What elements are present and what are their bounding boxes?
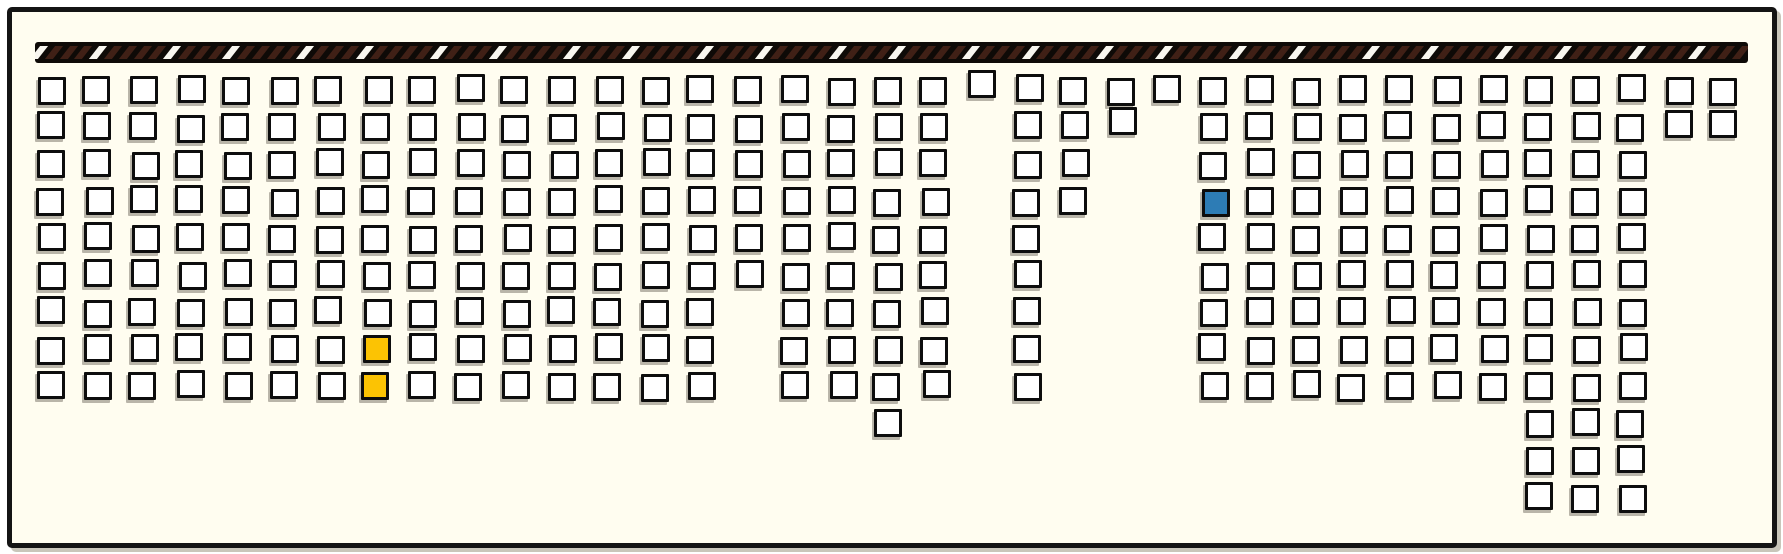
grid-cell-r1c25[interactable] xyxy=(1153,75,1181,103)
grid-cell-r9c20[interactable] xyxy=(923,370,951,398)
grid-cell-r8c31[interactable] xyxy=(1430,334,1458,362)
grid-cell-r2c34[interactable] xyxy=(1573,112,1601,140)
grid-cell-r9c4[interactable] xyxy=(177,370,205,398)
grid-cell-r5c22[interactable] xyxy=(1012,225,1040,253)
grid-cell-r3c19[interactable] xyxy=(875,148,903,176)
grid-cell-r9c14[interactable] xyxy=(641,374,669,402)
grid-cell-r2c1[interactable] xyxy=(37,111,65,139)
grid-cell-r4c12[interactable] xyxy=(548,188,576,216)
grid-cell-r4c18[interactable] xyxy=(828,186,856,214)
grid-cell-r2c26[interactable] xyxy=(1200,113,1228,141)
grid-cell-r6c20[interactable] xyxy=(919,261,947,289)
grid-cell-r4c5[interactable] xyxy=(222,186,250,214)
selected-cell-yellow-1[interactable] xyxy=(363,335,391,363)
grid-cell-r3c5[interactable] xyxy=(224,152,252,180)
grid-cell-r1c4[interactable] xyxy=(178,75,206,103)
grid-cell-r1c7[interactable] xyxy=(314,76,342,104)
grid-cell-r4c10[interactable] xyxy=(455,187,483,215)
grid-cell-r6c5[interactable] xyxy=(224,259,252,287)
grid-cell-r2c33[interactable] xyxy=(1524,113,1552,141)
grid-cell-r5c12[interactable] xyxy=(548,226,576,254)
hazard-stripe-brown xyxy=(1732,46,1748,59)
grid-cell-r2c23[interactable] xyxy=(1061,111,1089,139)
grid-cell-r6c10[interactable] xyxy=(457,262,485,290)
grid-cell-r6c17[interactable] xyxy=(782,263,810,291)
grid-cell-r9c15[interactable] xyxy=(688,372,716,400)
grid-cell-r5c1[interactable] xyxy=(38,223,66,251)
grid-cell-r6c12[interactable] xyxy=(548,262,576,290)
grid-cell-r1c13[interactable] xyxy=(596,76,624,104)
grid-cell-r8c20[interactable] xyxy=(920,337,948,365)
grid-cell-r7c30[interactable] xyxy=(1388,296,1416,324)
grid-cell-r6c34[interactable] xyxy=(1573,260,1601,288)
grid-cell-r4c1[interactable] xyxy=(36,188,64,216)
grid-cell-r8c19[interactable] xyxy=(875,336,903,364)
grid-cell-r1c32[interactable] xyxy=(1480,75,1508,103)
grid-cell-r8c3[interactable] xyxy=(131,334,159,362)
grid-cell-r8c18[interactable] xyxy=(828,336,856,364)
grid-cell-r9c34[interactable] xyxy=(1573,374,1601,402)
grid-cell-r8c6[interactable] xyxy=(271,335,299,363)
grid-cell-r8c29[interactable] xyxy=(1340,336,1368,364)
grid-cell-r1c23[interactable] xyxy=(1059,77,1087,105)
grid-cell-r7c26[interactable] xyxy=(1200,299,1228,327)
grid-cell-r4c15[interactable] xyxy=(688,186,716,214)
grid-cell-r1c15[interactable] xyxy=(686,75,714,103)
grid-cell-r1c36[interactable] xyxy=(1666,77,1694,105)
grid-cell-r2c2[interactable] xyxy=(83,112,111,140)
grid-cell-r9c27[interactable] xyxy=(1246,372,1274,400)
grid-cell-r9c13[interactable] xyxy=(593,373,621,401)
grid-cell-r5c29[interactable] xyxy=(1340,226,1368,254)
grid-cell-r3c34[interactable] xyxy=(1572,150,1600,178)
grid-cell-r4c28[interactable] xyxy=(1293,187,1321,215)
grid-cell-r6c26[interactable] xyxy=(1201,263,1229,291)
grid-cell-r2c3[interactable] xyxy=(129,112,157,140)
grid-cell-r2c7[interactable] xyxy=(318,113,346,141)
grid-cell-r2c19[interactable] xyxy=(875,113,903,141)
grid-cell-r5c9[interactable] xyxy=(409,226,437,254)
grid-cell-r7c17[interactable] xyxy=(782,299,810,327)
grid-cell-r4c2[interactable] xyxy=(86,187,114,215)
grid-cell-r9c6[interactable] xyxy=(270,371,298,399)
grid-cell-r2c29[interactable] xyxy=(1339,114,1367,142)
grid-cell-r5c8[interactable] xyxy=(361,225,389,253)
grid-cell-r6c9[interactable] xyxy=(408,261,436,289)
grid-cell-r8c27[interactable] xyxy=(1247,337,1275,365)
grid-cell-r4c34[interactable] xyxy=(1571,188,1599,216)
grid-cell-r7c8[interactable] xyxy=(364,299,392,327)
grid-cell-r6c22[interactable] xyxy=(1014,260,1042,288)
selected-cell-blue[interactable] xyxy=(1202,189,1230,217)
grid-cell-r5c26[interactable] xyxy=(1198,223,1226,251)
grid-cell-r9c29[interactable] xyxy=(1337,374,1365,402)
grid-cell-r3c11[interactable] xyxy=(503,151,531,179)
grid-cell-r5c30[interactable] xyxy=(1384,225,1412,253)
grid-cell-r5c27[interactable] xyxy=(1247,223,1275,251)
grid-cell-r1c28[interactable] xyxy=(1293,78,1321,106)
grid-cell-r8c34[interactable] xyxy=(1573,336,1601,364)
grid-cell-r2c15[interactable] xyxy=(687,114,715,142)
grid-cell-r2c14[interactable] xyxy=(644,114,672,142)
grid-cell-r1c34[interactable] xyxy=(1572,76,1600,104)
grid-cell-r8c2[interactable] xyxy=(84,334,112,362)
grid-cell-r9c3[interactable] xyxy=(128,372,156,400)
grid-cell-r5c2[interactable] xyxy=(84,222,112,250)
grid-cell-r6c29[interactable] xyxy=(1338,260,1366,288)
grid-cell-r4c11[interactable] xyxy=(503,188,531,216)
grid-cell-r6c11[interactable] xyxy=(502,262,530,290)
grid-cell-r8c22[interactable] xyxy=(1013,335,1041,363)
grid-cell-r6c3[interactable] xyxy=(131,259,159,287)
grid-cell-r9c11[interactable] xyxy=(502,371,530,399)
grid-cell-r2c36[interactable] xyxy=(1665,110,1693,138)
grid-cell-r8c9[interactable] xyxy=(409,333,437,361)
grid-cell-r8c14[interactable] xyxy=(642,334,670,362)
grid-cell-r2c22[interactable] xyxy=(1014,111,1042,139)
grid-cell-r1c9[interactable] xyxy=(408,76,436,104)
grid-cell-r2c30[interactable] xyxy=(1384,111,1412,139)
grid-cell-r7c15[interactable] xyxy=(686,298,714,326)
grid-cell-r4c16[interactable] xyxy=(734,186,762,214)
grid-cell-r7c28[interactable] xyxy=(1292,297,1320,325)
grid-cell-r4c30[interactable] xyxy=(1386,186,1414,214)
grid-cell-r11c33[interactable] xyxy=(1526,447,1554,475)
grid-cell-r2c24[interactable] xyxy=(1109,107,1137,135)
selected-cell-yellow-2[interactable] xyxy=(361,372,389,400)
grid-cell-r7c18[interactable] xyxy=(826,299,854,327)
grid-cell-r5c34[interactable] xyxy=(1571,225,1599,253)
grid-cell-r3c23[interactable] xyxy=(1062,149,1090,177)
grid-cell-r10c33[interactable] xyxy=(1526,410,1554,438)
grid-cell-r5c33[interactable] xyxy=(1527,225,1555,253)
grid-cell-r3c14[interactable] xyxy=(643,148,671,176)
grid-cell-r8c33[interactable] xyxy=(1525,334,1553,362)
grid-cell-r4c4[interactable] xyxy=(175,185,203,213)
grid-cell-r3c18[interactable] xyxy=(827,149,855,177)
grid-cell-r9c19[interactable] xyxy=(872,373,900,401)
grid-cell-r4c35[interactable] xyxy=(1619,188,1647,216)
grid-cell-r4c8[interactable] xyxy=(361,185,389,213)
grid-cell-r5c32[interactable] xyxy=(1480,224,1508,252)
grid-cell-r1c10[interactable] xyxy=(457,74,485,102)
grid-cell-r5c35[interactable] xyxy=(1618,223,1646,251)
grid-cell-r5c18[interactable] xyxy=(828,222,856,250)
hazard-stripe-bar xyxy=(35,42,1748,63)
grid-cell-r1c1[interactable] xyxy=(38,77,66,105)
grid-cell-r3c1[interactable] xyxy=(37,150,65,178)
grid-cell-r4c9[interactable] xyxy=(407,187,435,215)
grid-cell-r3c3[interactable] xyxy=(132,152,160,180)
grid-cell-r1c26[interactable] xyxy=(1199,77,1227,105)
grid-cell-r3c33[interactable] xyxy=(1524,149,1552,177)
grid-cell-r7c6[interactable] xyxy=(269,299,297,327)
grid-cell-r2c32[interactable] xyxy=(1478,111,1506,139)
grid-cell-r1c35[interactable] xyxy=(1618,74,1646,102)
grid-cell-r9c31[interactable] xyxy=(1434,371,1462,399)
grid-cell-r4c14[interactable] xyxy=(642,187,670,215)
grid-cell-r4c29[interactable] xyxy=(1340,187,1368,215)
grid-cell-r9c7[interactable] xyxy=(318,372,346,400)
grid-cell-r1c19[interactable] xyxy=(874,77,902,105)
grid-cell-r4c3[interactable] xyxy=(130,185,158,213)
grid-cell-r8c15[interactable] xyxy=(686,336,714,364)
grid-cell-r6c27[interactable] xyxy=(1247,262,1275,290)
grid-cell-r9c12[interactable] xyxy=(548,373,576,401)
grid-cell-r5c28[interactable] xyxy=(1292,226,1320,254)
grid-cell-r1c24[interactable] xyxy=(1107,78,1135,106)
grid-cell-r3c15[interactable] xyxy=(687,149,715,177)
grid-cell-r7c1[interactable] xyxy=(37,296,65,324)
grid-cell-r2c9[interactable] xyxy=(409,113,437,141)
grid-cell-r2c6[interactable] xyxy=(268,113,296,141)
grid-cell-r4c20[interactable] xyxy=(922,188,950,216)
grid-cell-r4c17[interactable] xyxy=(783,187,811,215)
grid-cell-r5c10[interactable] xyxy=(455,225,483,253)
grid-cell-r3c28[interactable] xyxy=(1293,151,1321,179)
grid-cell-r4c22[interactable] xyxy=(1012,189,1040,217)
grid-cell-r7c5[interactable] xyxy=(225,298,253,326)
grid-cell-r2c16[interactable] xyxy=(735,115,763,143)
grid-cell-r3c27[interactable] xyxy=(1247,148,1275,176)
grid-cell-r5c7[interactable] xyxy=(316,226,344,254)
grid-cell-r8c10[interactable] xyxy=(457,335,485,363)
grid-cell-r5c6[interactable] xyxy=(268,225,296,253)
grid-cell-r2c11[interactable] xyxy=(501,115,529,143)
grid-cell-r7c29[interactable] xyxy=(1338,297,1366,325)
grid-cell-r8c7[interactable] xyxy=(317,336,345,364)
grid-cell-r12c35[interactable] xyxy=(1619,485,1647,513)
grid-cell-r7c12[interactable] xyxy=(547,296,575,324)
grid-cell-r9c35[interactable] xyxy=(1619,372,1647,400)
grid-cell-r6c28[interactable] xyxy=(1294,262,1322,290)
grid-cell-r3c9[interactable] xyxy=(409,148,437,176)
grid-cell-r8c28[interactable] xyxy=(1292,336,1320,364)
grid-cell-r5c3[interactable] xyxy=(132,225,160,253)
grid-cell-r5c20[interactable] xyxy=(919,226,947,254)
grid-cell-r1c6[interactable] xyxy=(271,77,299,105)
grid-cell-r2c28[interactable] xyxy=(1294,113,1322,141)
grid-cell-r3c22[interactable] xyxy=(1014,151,1042,179)
grid-cell-r9c22[interactable] xyxy=(1014,373,1042,401)
grid-cell-r7c4[interactable] xyxy=(177,299,205,327)
grid-cell-r7c9[interactable] xyxy=(409,300,437,328)
grid-cell-r2c17[interactable] xyxy=(782,113,810,141)
grid-cell-r7c3[interactable] xyxy=(128,298,156,326)
grid-cell-r7c13[interactable] xyxy=(593,298,621,326)
grid-cell-r1c30[interactable] xyxy=(1385,75,1413,103)
grid-cell-r9c1[interactable] xyxy=(37,371,65,399)
grid-cell-r6c15[interactable] xyxy=(688,262,716,290)
grid-cell-r8c17[interactable] xyxy=(780,337,808,365)
grid-cell-r6c32[interactable] xyxy=(1478,261,1506,289)
grid-cell-r5c11[interactable] xyxy=(504,224,532,252)
grid-cell-r1c33[interactable] xyxy=(1525,76,1553,104)
grid-cell-r5c17[interactable] xyxy=(783,224,811,252)
grid-cell-r1c2[interactable] xyxy=(82,76,110,104)
grid-cell-r7c22[interactable] xyxy=(1013,297,1041,325)
grid-cell-r3c12[interactable] xyxy=(551,151,579,179)
grid-cell-r12c34[interactable] xyxy=(1571,485,1599,513)
grid-cell-r7c11[interactable] xyxy=(503,300,531,328)
grid-cell-r6c16[interactable] xyxy=(736,260,764,288)
grid-cell-r8c5[interactable] xyxy=(224,333,252,361)
grid-cell-r8c32[interactable] xyxy=(1481,335,1509,363)
grid-cell-r5c31[interactable] xyxy=(1432,226,1460,254)
grid-cell-r1c37[interactable] xyxy=(1709,78,1737,106)
grid-cell-r4c23[interactable] xyxy=(1059,187,1087,215)
grid-cell-r6c4[interactable] xyxy=(179,262,207,290)
grid-cell-r2c27[interactable] xyxy=(1245,112,1273,140)
grid-cell-r4c33[interactable] xyxy=(1525,185,1553,213)
grid-cell-r6c2[interactable] xyxy=(84,259,112,287)
grid-cell-r9c18[interactable] xyxy=(830,371,858,399)
grid-cell-r7c14[interactable] xyxy=(641,300,669,328)
grid-cell-r1c22[interactable] xyxy=(1016,74,1044,102)
grid-cell-r7c35[interactable] xyxy=(1619,299,1647,327)
grid-cell-r2c12[interactable] xyxy=(549,114,577,142)
grid-cell-r7c34[interactable] xyxy=(1574,298,1602,326)
grid-cell-r3c31[interactable] xyxy=(1433,151,1461,179)
grid-cell-r6c33[interactable] xyxy=(1526,261,1554,289)
grid-cell-r4c6[interactable] xyxy=(271,189,299,217)
grid-cell-r3c8[interactable] xyxy=(362,151,390,179)
grid-cell-r10c19[interactable] xyxy=(874,409,902,437)
grid-cell-r4c19[interactable] xyxy=(873,189,901,217)
grid-cell-r6c31[interactable] xyxy=(1430,261,1458,289)
grid-cell-r1c17[interactable] xyxy=(781,75,809,103)
grid-cell-r3c26[interactable] xyxy=(1199,152,1227,180)
grid-cell-r8c4[interactable] xyxy=(175,333,203,361)
grid-cell-r9c26[interactable] xyxy=(1201,372,1229,400)
grid-cell-r9c17[interactable] xyxy=(781,371,809,399)
grid-cell-r3c30[interactable] xyxy=(1385,151,1413,179)
grid-cell-r5c13[interactable] xyxy=(595,224,623,252)
grid-cell-r6c7[interactable] xyxy=(317,260,345,288)
grid-cell-r3c6[interactable] xyxy=(268,151,296,179)
grid-cell-r7c7[interactable] xyxy=(314,296,342,324)
grid-cell-r7c10[interactable] xyxy=(456,297,484,325)
grid-cell-r1c5[interactable] xyxy=(222,77,250,105)
grid-cell-r1c20[interactable] xyxy=(919,77,947,105)
grid-cell-r4c32[interactable] xyxy=(1480,189,1508,217)
grid-cell-r9c32[interactable] xyxy=(1479,373,1507,401)
grid-cell-r9c33[interactable] xyxy=(1525,372,1553,400)
grid-cell-r7c2[interactable] xyxy=(84,300,112,328)
grid-cell-r2c31[interactable] xyxy=(1433,114,1461,142)
grid-cell-r3c7[interactable] xyxy=(316,148,344,176)
grid-cell-r8c1[interactable] xyxy=(37,337,65,365)
grid-cell-r9c30[interactable] xyxy=(1386,372,1414,400)
grid-cell-r7c19[interactable] xyxy=(873,300,901,328)
grid-cell-r3c10[interactable] xyxy=(457,149,485,177)
grid-cell-r1c18[interactable] xyxy=(828,78,856,106)
grid-cell-r2c5[interactable] xyxy=(221,113,249,141)
grid-cell-r9c5[interactable] xyxy=(225,372,253,400)
grid-cell-r2c37[interactable] xyxy=(1709,110,1737,138)
grid-cell-r6c1[interactable] xyxy=(38,262,66,290)
grid-cell-r2c10[interactable] xyxy=(458,113,486,141)
grid-cell-r4c31[interactable] xyxy=(1432,187,1460,215)
grid-cell-r1c21[interactable] xyxy=(968,70,996,98)
grid-cell-r8c12[interactable] xyxy=(549,335,577,363)
grid-cell-r3c20[interactable] xyxy=(919,149,947,177)
grid-cell-r1c3[interactable] xyxy=(130,76,158,104)
grid-cell-r12c33[interactable] xyxy=(1525,482,1553,510)
grid-cell-r1c31[interactable] xyxy=(1434,76,1462,104)
grid-cell-r7c27[interactable] xyxy=(1246,297,1274,325)
grid-cell-r8c26[interactable] xyxy=(1198,333,1226,361)
grid-cell-r1c8[interactable] xyxy=(365,76,393,104)
grid-cell-r3c13[interactable] xyxy=(595,149,623,177)
grid-cell-r6c35[interactable] xyxy=(1619,260,1647,288)
grid-cell-r7c20[interactable] xyxy=(921,297,949,325)
grid-cell-r4c13[interactable] xyxy=(595,185,623,213)
grid-cell-r9c28[interactable] xyxy=(1293,370,1321,398)
grid-cell-r1c14[interactable] xyxy=(642,77,670,105)
grid-cell-r3c4[interactable] xyxy=(175,150,203,178)
grid-cell-r1c11[interactable] xyxy=(500,76,528,104)
grid-cell-r3c16[interactable] xyxy=(735,150,763,178)
grid-cell-r6c14[interactable] xyxy=(642,261,670,289)
grid-cell-r1c29[interactable] xyxy=(1339,75,1367,103)
grid-cell-r2c18[interactable] xyxy=(827,115,855,143)
grid-cell-r9c2[interactable] xyxy=(84,372,112,400)
grid-cell-r10c35[interactable] xyxy=(1616,410,1644,438)
grid-cell-r3c17[interactable] xyxy=(783,150,811,178)
grid-cell-r6c13[interactable] xyxy=(594,263,622,291)
grid-cell-r8c35[interactable] xyxy=(1620,333,1648,361)
grid-cell-r7c31[interactable] xyxy=(1432,297,1460,325)
grid-cell-r10c34[interactable] xyxy=(1572,408,1600,436)
grid-cell-r3c32[interactable] xyxy=(1481,150,1509,178)
grid-cell-r7c32[interactable] xyxy=(1478,298,1506,326)
grid-cell-r6c8[interactable] xyxy=(363,262,391,290)
grid-cell-r4c27[interactable] xyxy=(1246,187,1274,215)
grid-cell-r3c2[interactable] xyxy=(83,149,111,177)
grid-cell-r11c35[interactable] xyxy=(1617,445,1645,473)
grid-cell-r6c18[interactable] xyxy=(827,262,855,290)
grid-cell-r7c33[interactable] xyxy=(1525,298,1553,326)
grid-cell-r5c4[interactable] xyxy=(176,223,204,251)
grid-cell-r2c13[interactable] xyxy=(597,112,625,140)
grid-cell-r1c12[interactable] xyxy=(548,76,576,104)
grid-cell-r2c35[interactable] xyxy=(1616,114,1644,142)
grid-cell-r8c13[interactable] xyxy=(595,333,623,361)
grid-cell-r2c4[interactable] xyxy=(177,115,205,143)
grid-cell-r1c27[interactable] xyxy=(1246,75,1274,103)
grid-cell-r5c14[interactable] xyxy=(642,223,670,251)
grid-cell-r9c9[interactable] xyxy=(408,371,436,399)
grid-cell-r8c11[interactable] xyxy=(504,334,532,362)
grid-cell-r3c35[interactable] xyxy=(1619,151,1647,179)
grid-cell-r2c20[interactable] xyxy=(920,113,948,141)
grid-cell-r3c29[interactable] xyxy=(1341,150,1369,178)
grid-cell-r5c15[interactable] xyxy=(689,225,717,253)
grid-cell-r5c19[interactable] xyxy=(872,226,900,254)
grid-cell-r5c16[interactable] xyxy=(735,224,763,252)
grid-cell-r5c5[interactable] xyxy=(222,223,250,251)
grid-cell-r6c30[interactable] xyxy=(1386,260,1414,288)
grid-cell-r11c34[interactable] xyxy=(1572,447,1600,475)
grid-cell-r6c6[interactable] xyxy=(269,260,297,288)
grid-cell-r8c30[interactable] xyxy=(1386,336,1414,364)
grid-cell-r4c7[interactable] xyxy=(317,187,345,215)
grid-cell-r9c10[interactable] xyxy=(454,373,482,401)
grid-cell-r2c8[interactable] xyxy=(362,113,390,141)
grid-cell-r6c19[interactable] xyxy=(875,263,903,291)
grid-cell-r1c16[interactable] xyxy=(734,76,762,104)
